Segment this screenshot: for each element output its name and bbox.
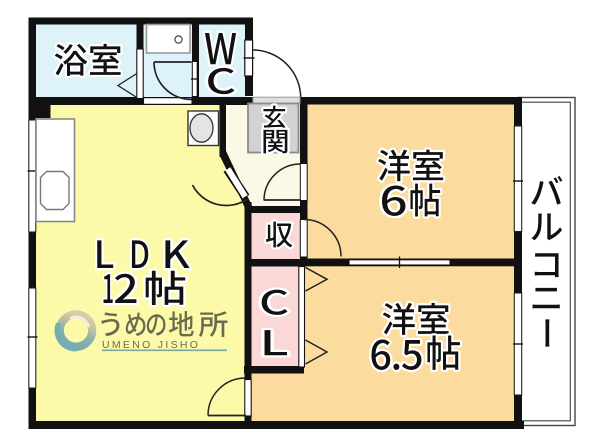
svg-text:UMENO JISHO: UMENO JISHO	[102, 339, 200, 351]
